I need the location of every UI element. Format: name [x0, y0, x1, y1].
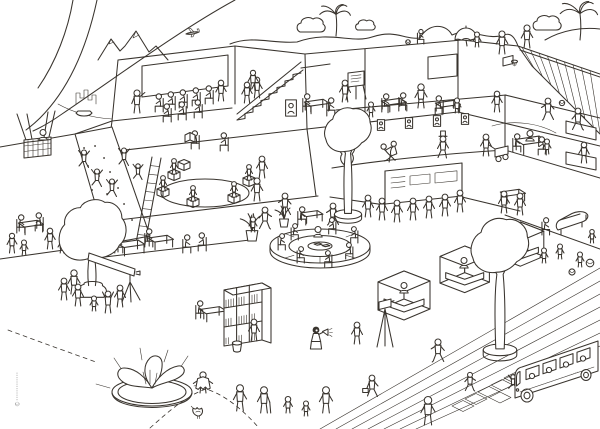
plaza-kid [249, 217, 257, 232]
story-circle-kid [228, 182, 240, 204]
airplane [186, 28, 200, 37]
portrait-frame [461, 114, 468, 125]
balloon-passenger [39, 130, 47, 141]
playing-kid [588, 230, 595, 244]
rowing-boat [76, 111, 92, 116]
bystander [45, 228, 55, 249]
grandfather [233, 385, 246, 411]
bus [515, 341, 598, 402]
scene-svg: © [0, 0, 600, 429]
gallery-floor [332, 150, 505, 168]
basketball [559, 100, 564, 105]
stargazer [59, 278, 70, 300]
bystander [7, 233, 17, 253]
hill-bush [533, 16, 561, 30]
playing-kid [556, 244, 564, 259]
flip-chart [346, 71, 366, 100]
rooftop-palm [560, 1, 597, 40]
open-book [185, 133, 195, 143]
steps-walkway [320, 268, 600, 429]
roof-ridge [518, 46, 600, 134]
pupil [327, 98, 335, 116]
overcoat-man [421, 397, 435, 425]
play-ball [586, 259, 594, 267]
tour-visitor [363, 195, 374, 217]
potted-plant [240, 214, 259, 241]
stair-landing [235, 46, 330, 68]
portrait-frame [405, 118, 412, 129]
portrait-frame [377, 120, 384, 131]
roof-person [521, 25, 533, 48]
exhibit-visitor [515, 193, 526, 215]
child [284, 397, 293, 414]
bookshelf [224, 283, 271, 346]
cart [489, 145, 508, 162]
listener [352, 322, 363, 344]
copyright-text: © [15, 401, 22, 407]
plaza-tree-right [471, 218, 529, 361]
hill-bush [297, 18, 325, 32]
dashed-path-left [8, 330, 96, 362]
audience [178, 102, 186, 120]
grandmother [257, 387, 270, 413]
kid-under-umbrella [473, 32, 481, 47]
stall-vendor [400, 283, 408, 294]
scene-items [7, 1, 598, 425]
playing-kid [540, 248, 548, 263]
study-desk [148, 235, 173, 249]
hill-plant [320, 4, 351, 36]
copyright: © [15, 372, 22, 407]
storyteller [251, 178, 263, 201]
framed-picture [286, 100, 297, 116]
plaza-tree-left [59, 200, 126, 298]
balloon-basket [17, 111, 55, 158]
diner-kid [543, 139, 551, 154]
portrait-frame [433, 116, 440, 127]
lounger [220, 133, 228, 151]
running-kid [465, 372, 476, 391]
story-circle-kid [187, 186, 199, 208]
picnic-wheel [406, 40, 411, 45]
audience [205, 86, 213, 104]
basketball-player [492, 91, 502, 112]
toddler [302, 401, 310, 416]
piano [556, 212, 588, 235]
teacher [415, 84, 427, 108]
briefcase-man [363, 375, 378, 396]
walking-woman [431, 339, 444, 362]
kid [20, 240, 28, 255]
cheering-person [103, 291, 114, 313]
stool-cube [178, 160, 190, 171]
tango-dancers [381, 141, 397, 162]
plaza-walker [279, 193, 292, 215]
diner [526, 131, 534, 142]
classroom-board [428, 54, 457, 79]
side-table [301, 211, 323, 224]
audience [155, 94, 163, 112]
basketball-hoop [503, 56, 518, 67]
playing-kid [576, 252, 584, 267]
ladder-climber [133, 164, 143, 180]
curtain-fold-inner [38, 0, 73, 88]
phone-person [257, 156, 268, 178]
play-ball [569, 269, 575, 275]
camera-tripod [377, 299, 394, 347]
stargazer-kid [90, 296, 98, 311]
audience [194, 100, 202, 118]
lounge-guest [198, 233, 206, 251]
leaf-planter [96, 348, 208, 408]
plaza-walker [259, 207, 272, 229]
sofa-reader [314, 227, 322, 238]
basketball-player [542, 98, 555, 120]
kitchen-counter [566, 152, 596, 170]
diner [513, 134, 521, 152]
bucket [232, 341, 241, 352]
illustration-page: © [0, 0, 600, 429]
megaphone-woman [310, 327, 332, 349]
lecture-floor-edge [108, 121, 307, 152]
story-circle-kid [157, 176, 169, 198]
parent [319, 387, 332, 413]
walkway-steps [320, 268, 600, 429]
hill-bush [356, 20, 376, 30]
stall-vendor [460, 258, 468, 269]
story-circle-kid [243, 165, 255, 187]
lounge-guest [183, 235, 191, 253]
bird [191, 406, 202, 418]
audience [163, 104, 171, 122]
